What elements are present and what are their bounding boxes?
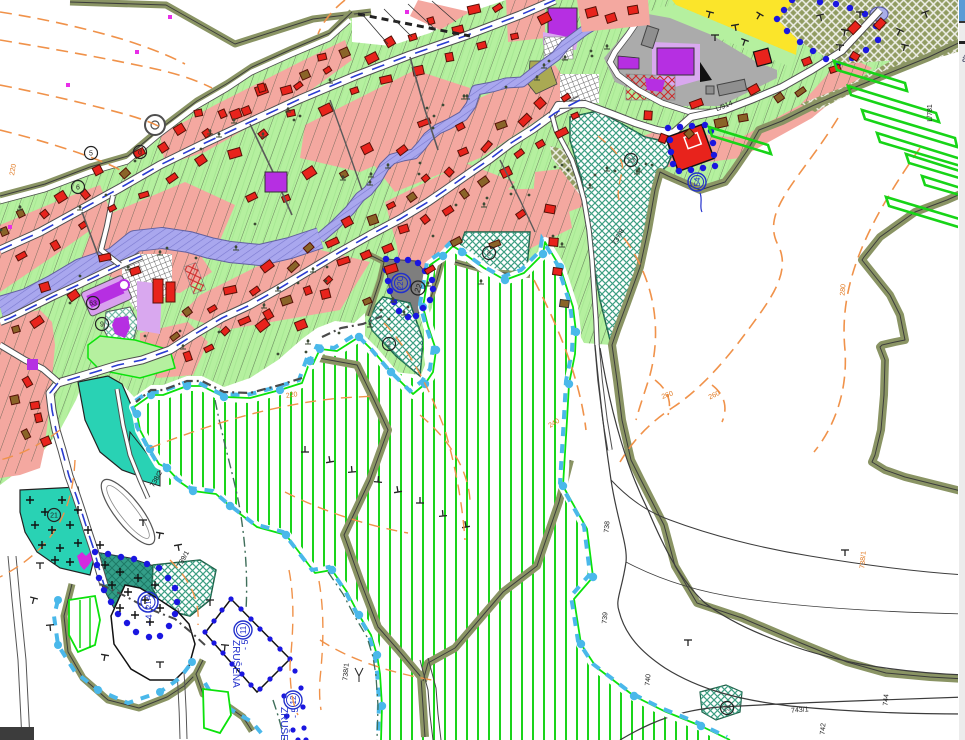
svg-text:739: 739: [602, 612, 610, 624]
svg-text:21A: 21A: [144, 595, 153, 608]
svg-text:2: 2: [387, 342, 391, 349]
svg-text:- 5: - 5: [290, 707, 300, 718]
svg-text:ZRUŠENA: ZRUŠENA: [230, 640, 243, 688]
svg-text:738: 738: [604, 521, 612, 533]
svg-text:5: 5: [89, 151, 93, 158]
svg-text:6: 6: [76, 185, 80, 192]
svg-text:63: 63: [89, 301, 97, 308]
svg-text:742: 742: [820, 723, 828, 735]
svg-text:54: 54: [693, 177, 702, 186]
svg-text:d: d: [138, 150, 142, 157]
svg-text:23: 23: [627, 158, 635, 165]
svg-text:ZRUŠENA: ZRUŠENA: [278, 707, 291, 740]
svg-text:21: 21: [50, 513, 58, 520]
svg-text:8: 8: [487, 251, 491, 258]
svg-text:11: 11: [239, 625, 248, 634]
svg-text:744: 744: [883, 694, 891, 706]
svg-text:740: 740: [645, 674, 653, 686]
svg-text:22C: 22C: [396, 275, 405, 290]
svg-text:25: 25: [723, 706, 731, 713]
svg-text:L/781: L/781: [927, 104, 934, 122]
svg-text:9: 9: [100, 322, 104, 329]
svg-text:280: 280: [840, 284, 848, 296]
svg-text:- 4: - 4: [144, 614, 154, 625]
